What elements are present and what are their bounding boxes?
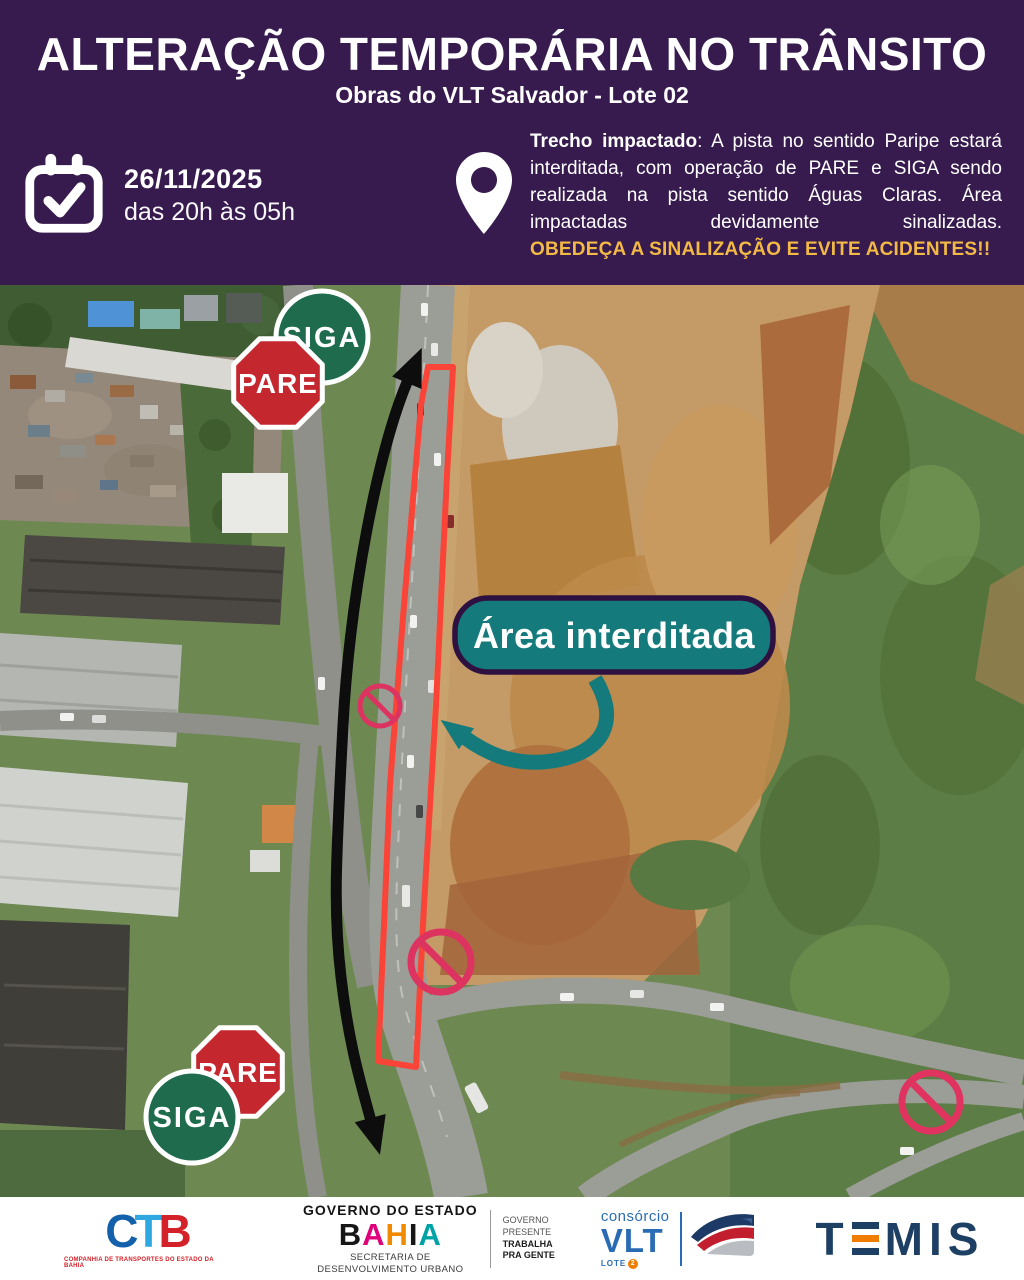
page-title: ALTERAÇÃO TEMPORÁRIA NO TRÂNSITO <box>0 0 1024 78</box>
ctb-letters: CTB <box>105 1208 188 1254</box>
vlt-consortium-logo: consórcio VLT LOTE2 <box>601 1208 758 1268</box>
bahia-gov-main: GOVERNO DO ESTADO BAHIA SECRETARIA DE DE… <box>303 1202 478 1276</box>
temis-letter-e <box>852 1222 879 1255</box>
poster-footer: CTB COMPANHIA DE TRANSPORTES DO ESTADO D… <box>0 1197 1024 1280</box>
poster-header: ALTERAÇÃO TEMPORÁRIA NO TRÂNSITO Obras d… <box>0 0 1024 285</box>
info-row: 26/11/2025 das 20h às 05h Trecho impacta… <box>0 129 1024 261</box>
siga-sign-bottom: SIGA <box>146 1071 238 1163</box>
schedule-block: 26/11/2025 das 20h às 05h <box>124 164 295 227</box>
bahia-divider <box>490 1210 491 1268</box>
bahia-gov-logo: GOVERNO DO ESTADO BAHIA SECRETARIA DE DE… <box>303 1202 555 1276</box>
temis-letter: T <box>816 1216 850 1262</box>
event-time: das 20h às 05h <box>124 198 295 227</box>
area-label-pill: Área interditada <box>455 598 773 672</box>
pare-sign-top: PARE <box>234 339 323 428</box>
bahia-sub-line1: SECRETARIA DE <box>317 1252 463 1264</box>
temis-letter: I <box>929 1216 948 1262</box>
bahia-slogan: GOVERNO PRESENTE TRABALHA PRA GENTE <box>503 1215 555 1262</box>
temis-word: TMIS <box>816 1216 985 1262</box>
temis-logo: TMIS <box>816 1216 985 1262</box>
temis-letter: M <box>885 1216 929 1262</box>
notice-warning: OBEDEÇA A SINALIZAÇÃO E EVITE ACIDENTES!… <box>530 239 1002 261</box>
bahia-letter: H <box>386 1217 409 1252</box>
vlt-word: VLT <box>601 1225 664 1256</box>
bahia-heading: GOVERNO DO ESTADO <box>303 1202 478 1218</box>
event-date: 26/11/2025 <box>124 164 295 195</box>
bahia-word: BAHIA <box>339 1219 442 1250</box>
bahia-slogan-line: GOVERNO <box>503 1215 555 1227</box>
bahia-slogan-line: TRABALHA <box>503 1239 555 1251</box>
bahia-secretaria: SECRETARIA DE DESENVOLVIMENTO URBANO <box>317 1252 463 1276</box>
location-pin-icon <box>454 150 514 240</box>
ctb-letter-c: C <box>105 1205 134 1257</box>
bahia-slogan-line: PRESENTE <box>503 1227 555 1239</box>
notice-text: Trecho impactado: A pista no sentido Par… <box>530 129 1002 237</box>
aerial-map: Área interditada SIGA PARE PARE SIGA <box>0 285 1024 1197</box>
bahia-letter: A <box>362 1217 385 1252</box>
bahia-letter: I <box>409 1217 419 1252</box>
ctb-letter-b: B <box>159 1205 188 1257</box>
area-label: Área interditada <box>473 615 756 656</box>
vlt-lote-label: LOTE <box>601 1259 626 1268</box>
ctb-logo: CTB COMPANHIA DE TRANSPORTES DO ESTADO D… <box>64 1208 229 1269</box>
ctb-letter-t: T <box>134 1205 158 1257</box>
page-subtitle: Obras do VLT Salvador - Lote 02 <box>0 82 1024 109</box>
impact-notice: Trecho impactado: A pista no sentido Par… <box>530 129 1002 261</box>
ctb-caption: COMPANHIA DE TRANSPORTES DO ESTADO DA BA… <box>64 1257 229 1269</box>
temis-letter: S <box>948 1216 985 1262</box>
bahia-sub-line2: DESENVOLVIMENTO URBANO <box>317 1264 463 1276</box>
train-icon <box>688 1211 758 1266</box>
bahia-letter: B <box>339 1217 362 1252</box>
siga-sign-label: SIGA <box>153 1102 232 1134</box>
vlt-divider <box>680 1212 682 1266</box>
vlt-lote-badge: 2 <box>628 1259 638 1269</box>
aerial-terrain <box>0 285 1024 1197</box>
bahia-letter: A <box>419 1217 442 1252</box>
vlt-lote: LOTE2 <box>601 1259 638 1269</box>
calendar-check-icon <box>20 149 108 241</box>
pare-sign-label: PARE <box>238 368 318 399</box>
bahia-slogan-line: PRA GENTE <box>503 1250 555 1262</box>
vlt-text: consórcio VLT LOTE2 <box>601 1208 670 1268</box>
notice-lead: Trecho impactado <box>530 131 697 152</box>
